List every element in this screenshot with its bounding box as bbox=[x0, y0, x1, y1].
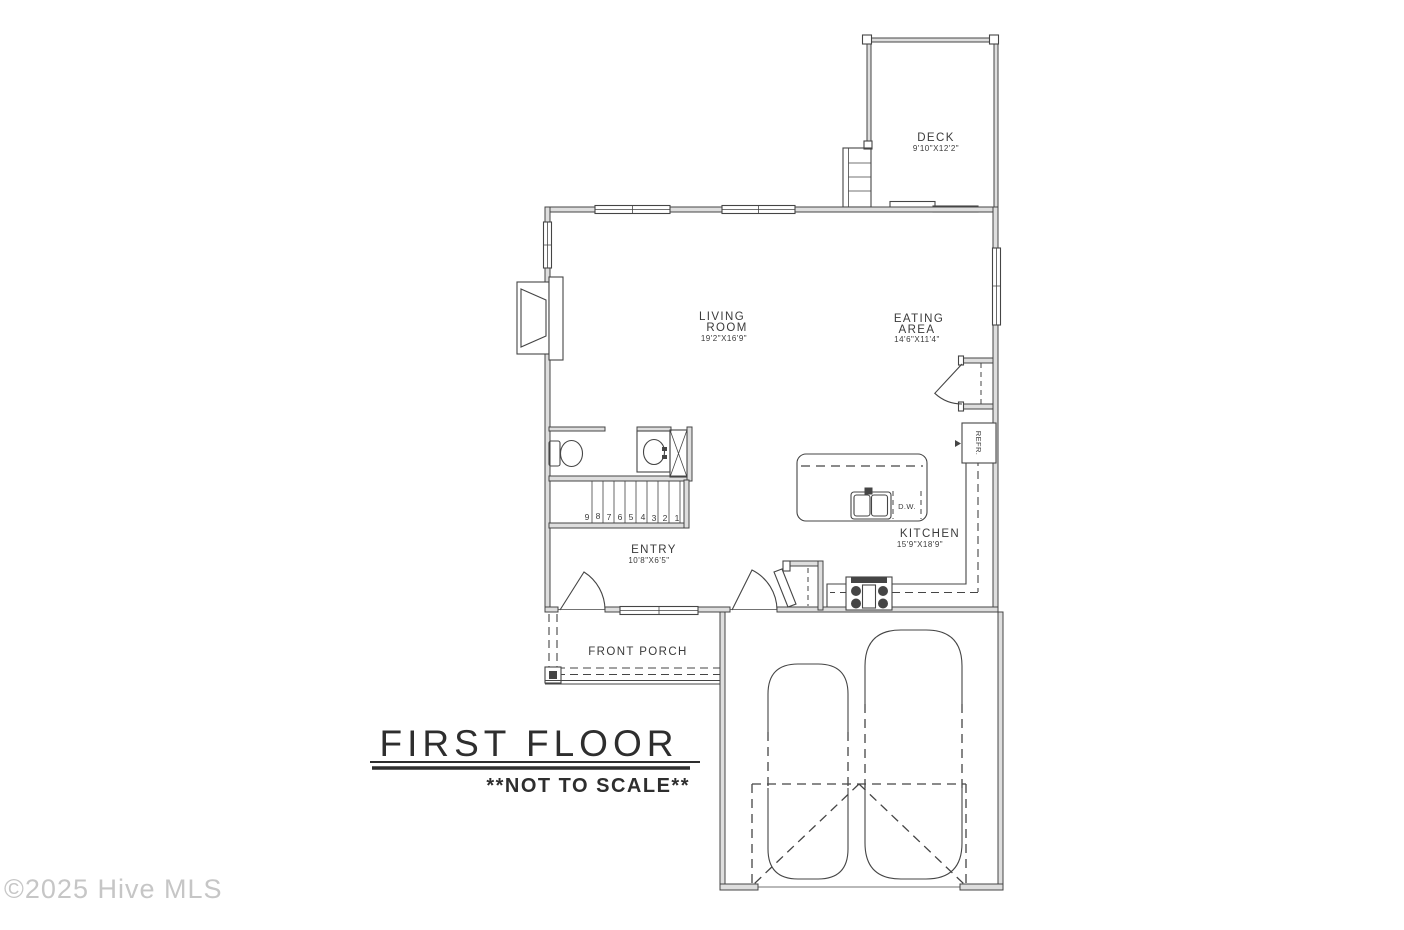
window bbox=[595, 206, 670, 214]
mls-watermark: ©2025 Hive MLS bbox=[4, 874, 223, 904]
pantry-closet bbox=[935, 356, 993, 411]
window bbox=[620, 607, 698, 615]
eating-area-dims: 14'6"X11'4" bbox=[894, 335, 940, 344]
deck-dims: 9'10"X12'2" bbox=[913, 144, 959, 153]
front-door-swing bbox=[560, 572, 605, 610]
living-room-dims: 19'2"X16'9" bbox=[701, 334, 747, 343]
closet-door-leaf bbox=[774, 569, 796, 607]
main-walls bbox=[545, 207, 998, 612]
front-porch-label: FRONT PORCH bbox=[588, 646, 688, 658]
window bbox=[993, 248, 1001, 325]
deck-stairs bbox=[843, 148, 871, 207]
stair-number: 2 bbox=[663, 513, 668, 523]
dishwasher-label: D.W. bbox=[898, 502, 916, 511]
title-block: FIRST FLOOR **NOT TO SCALE** bbox=[370, 723, 700, 797]
toilet bbox=[549, 441, 583, 467]
stair-number: 9 bbox=[585, 512, 590, 522]
stair-number: 5 bbox=[629, 512, 634, 522]
living-room-label-2: ROOM bbox=[706, 322, 747, 334]
car-outline-right bbox=[865, 630, 962, 879]
garage-door-apron bbox=[752, 784, 966, 884]
kitchen-island: D.W. bbox=[797, 454, 927, 521]
chase-box bbox=[670, 430, 687, 477]
staircase: 9 8 7 6 5 4 3 2 1 bbox=[549, 480, 689, 528]
floor-plan-drawing: 9 8 7 6 5 4 3 2 1 D.W. bbox=[0, 0, 1404, 930]
stair-number: 4 bbox=[641, 512, 646, 522]
window bbox=[722, 206, 795, 214]
entry-dims: 10'8"X6'5" bbox=[628, 556, 669, 565]
not-to-scale-note: **NOT TO SCALE** bbox=[486, 775, 690, 797]
kitchen-label: KITCHEN bbox=[900, 528, 960, 540]
refrigerator-label: REFR. bbox=[974, 431, 983, 456]
floor-plan-page: 9 8 7 6 5 4 3 2 1 D.W. bbox=[0, 0, 1404, 930]
deck-label: DECK bbox=[917, 132, 955, 144]
stair-number: 3 bbox=[652, 513, 657, 523]
stair-number: 6 bbox=[618, 512, 623, 522]
powder-room bbox=[549, 427, 692, 481]
window bbox=[544, 222, 552, 268]
vanity-sink bbox=[637, 431, 670, 472]
windows bbox=[544, 206, 1001, 615]
car-outline-left bbox=[768, 664, 848, 879]
range-stove bbox=[846, 577, 892, 610]
fireplace bbox=[517, 277, 563, 360]
deck-post bbox=[863, 35, 872, 44]
pantry-door-swing bbox=[935, 364, 962, 404]
garage-structure bbox=[720, 612, 1003, 890]
refrigerator: REFR. bbox=[955, 423, 996, 463]
entry-label: ENTRY bbox=[631, 544, 677, 556]
deck-post bbox=[990, 35, 999, 44]
doors bbox=[560, 570, 777, 610]
stair-number: 1 bbox=[675, 513, 680, 523]
deck-structure bbox=[843, 35, 999, 212]
plan-title: FIRST FLOOR bbox=[380, 723, 679, 764]
stair-number: 8 bbox=[596, 511, 601, 521]
kitchen-dims: 15'9"X18'9" bbox=[897, 540, 943, 549]
garage-entry-door-swing bbox=[732, 570, 777, 610]
coat-closet bbox=[774, 561, 823, 610]
stair-number: 7 bbox=[607, 512, 612, 522]
